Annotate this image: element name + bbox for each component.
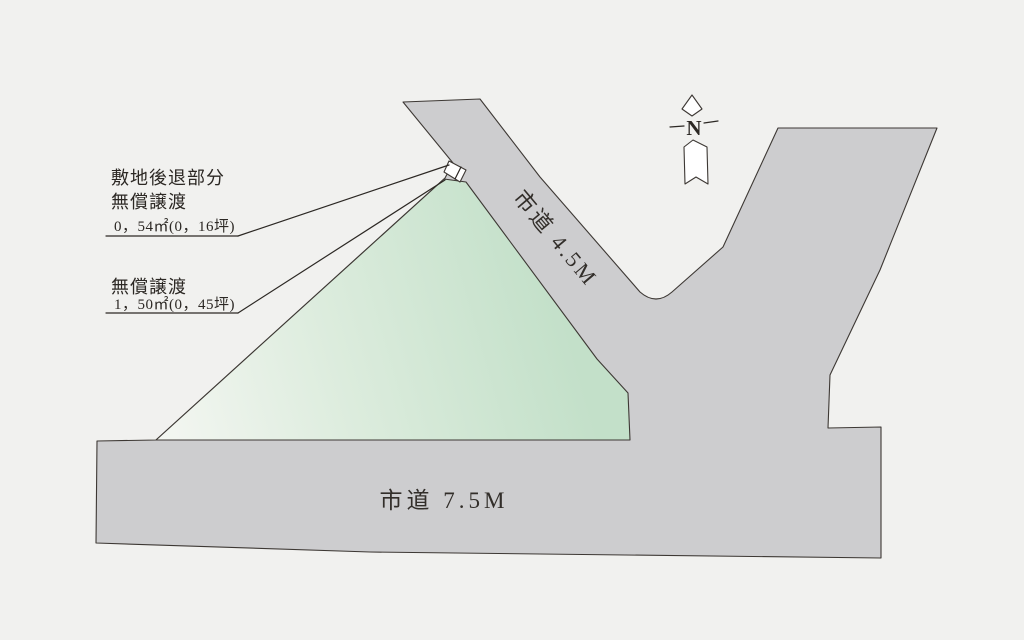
setback-label-line1: 敷地後退部分 [111,168,225,188]
compass-shield-icon [684,140,708,184]
setback-label-line2: 無償譲渡 [111,192,187,212]
road-label-7-5m: 市道 7.5M [380,488,509,513]
setback-value: 0，54㎡(0，16坪) [114,218,235,235]
site-plan-drawing: 敷地後退部分 無償譲渡 0，54㎡(0，16坪) 無償譲渡 1，50㎡(0，45… [0,0,1024,640]
transfer-label: 無償譲渡 [111,277,187,297]
compass-north-letter: N [686,116,701,140]
transfer-value: 1，50㎡(0，45坪) [114,296,235,313]
